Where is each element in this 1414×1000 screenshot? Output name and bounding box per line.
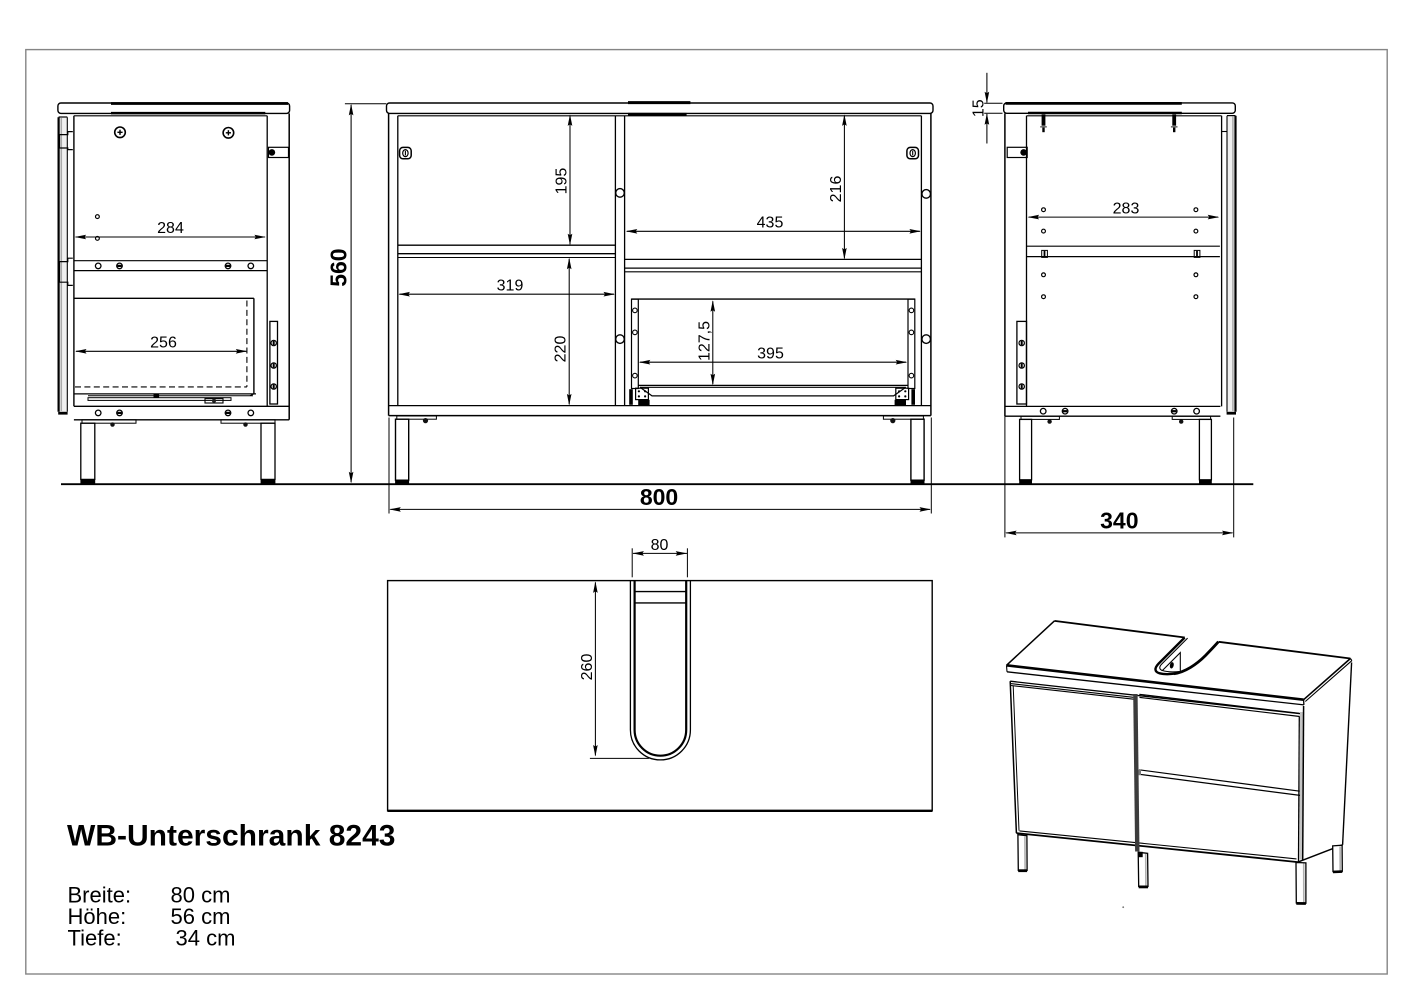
svg-text:260: 260 — [579, 654, 596, 681]
svg-text:WB-Unterschrank 8243: WB-Unterschrank 8243 — [67, 820, 395, 853]
svg-text:395: 395 — [757, 346, 784, 363]
svg-text:80: 80 — [651, 537, 669, 554]
svg-text:284: 284 — [157, 220, 184, 237]
svg-text:15: 15 — [970, 99, 987, 117]
svg-text:34 cm: 34 cm — [176, 926, 236, 951]
svg-text:800: 800 — [640, 484, 678, 510]
svg-text:195: 195 — [554, 168, 571, 195]
svg-text:319: 319 — [497, 277, 524, 294]
svg-text:435: 435 — [757, 215, 784, 232]
svg-text:560: 560 — [326, 248, 352, 286]
svg-text:127,5: 127,5 — [696, 321, 713, 361]
svg-text:256: 256 — [150, 335, 177, 352]
svg-text:220: 220 — [553, 336, 570, 363]
svg-text:216: 216 — [828, 176, 845, 203]
svg-text:340: 340 — [1100, 507, 1138, 533]
svg-text:283: 283 — [1113, 200, 1140, 217]
svg-text:Tiefe:: Tiefe: — [68, 926, 122, 951]
